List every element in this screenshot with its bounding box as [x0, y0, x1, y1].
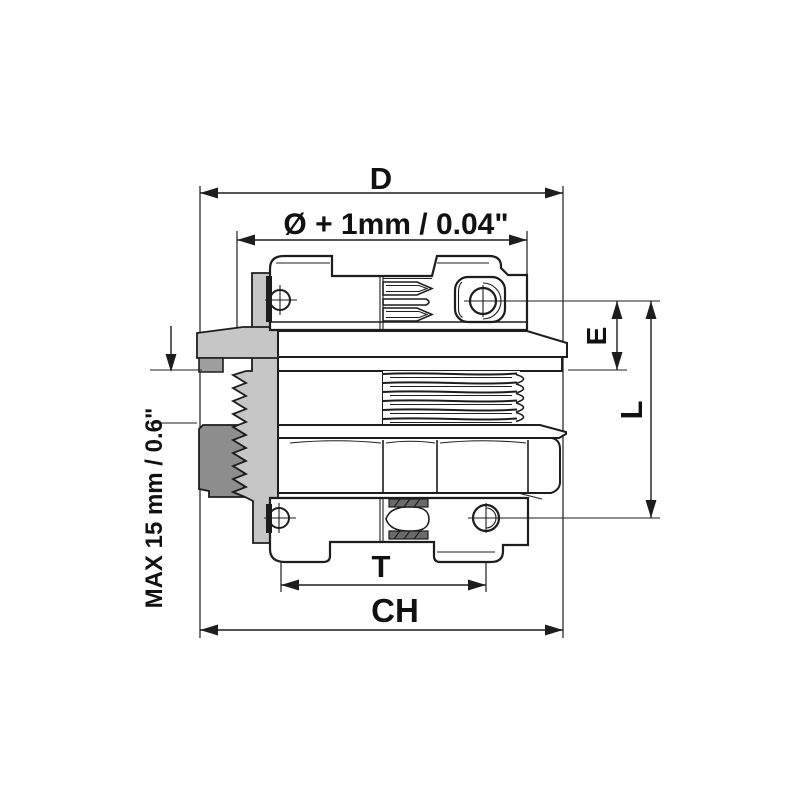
dimension-diameter: Ø + 1mm / 0.04": [237, 208, 527, 246]
drawing-canvas: D Ø + 1mm / 0.04" E L T CH MAX: [0, 0, 800, 800]
hex-body: [278, 438, 560, 493]
upper-subflange: [278, 357, 562, 371]
dim-label-max: MAX 15 mm / 0.6": [141, 408, 168, 609]
dim-label-diameter: Ø + 1mm / 0.04": [283, 208, 508, 241]
body-left: [278, 371, 383, 425]
seal-dark-block: [199, 425, 244, 497]
dim-label-ch: CH: [371, 592, 419, 629]
seal-medium-block: [199, 358, 223, 372]
dim-label-e: E: [581, 327, 612, 346]
slot-tab-lower: [389, 531, 428, 539]
dim-label-d: D: [370, 161, 392, 196]
dimension-l: L: [614, 301, 657, 518]
dimension-ch: CH: [200, 592, 563, 636]
upper-flange: [278, 331, 567, 357]
dimension-max: MAX 15 mm / 0.6": [141, 326, 177, 608]
dimension-e: E: [581, 301, 623, 370]
seal-wing: [197, 327, 278, 358]
dim-label-t: T: [372, 549, 391, 584]
dim-label-l: L: [614, 401, 649, 420]
technical-drawing: D Ø + 1mm / 0.04" E L T CH MAX: [0, 0, 800, 800]
lower-flange: [278, 425, 566, 438]
thread-zone: [383, 371, 520, 425]
slot-tab-upper: [389, 499, 428, 507]
dimension-d: D: [200, 161, 563, 199]
